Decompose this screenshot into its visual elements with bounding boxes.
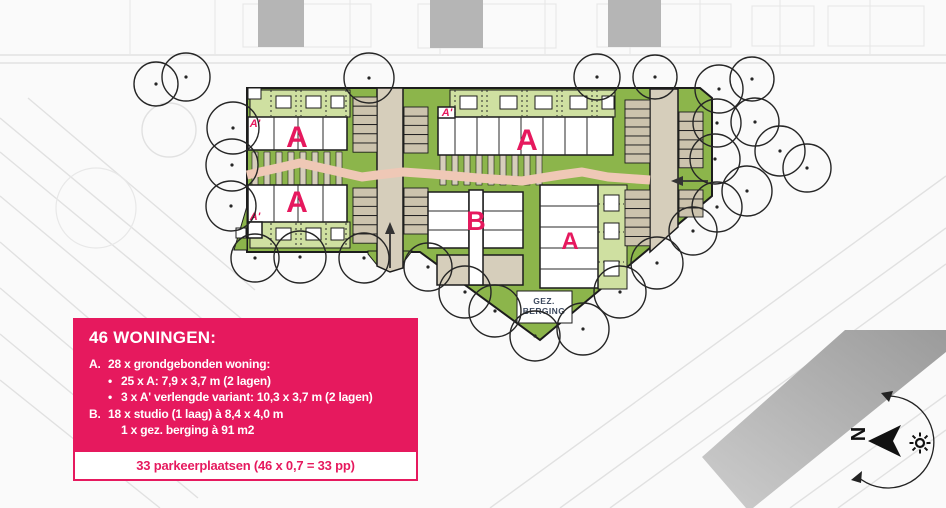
label-a2: A (286, 186, 308, 219)
tree-trunk-dot (533, 334, 536, 337)
tree-trunk-dot (298, 255, 301, 258)
north-arrow-icon (868, 425, 901, 457)
tree-trunk-dot (745, 189, 748, 192)
gez-berging: GEZ. BERGING (517, 291, 572, 323)
tree-trunk-dot (653, 75, 656, 78)
site-plan-page: GEZ. BERGING A A A A B A' A' A' N 46 WON… (0, 0, 946, 508)
parking-stall (625, 127, 650, 136)
tree-trunk-dot (230, 163, 233, 166)
garden-shed (604, 223, 619, 239)
gez-berging-label-1: GEZ. (533, 296, 554, 306)
garden-shed (460, 96, 477, 109)
sun-ray (925, 436, 928, 439)
tree-trunk-dot (154, 82, 157, 85)
parking-stall (353, 206, 377, 215)
tree-trunk-dot (367, 76, 370, 79)
existing-buildings (258, 0, 661, 48)
parking-stall (404, 225, 428, 234)
parking-stall (625, 109, 650, 118)
parking-stall (404, 107, 428, 116)
parking-stall (353, 97, 377, 106)
parking-stall (679, 190, 703, 199)
tree-trunk-dot (362, 256, 365, 259)
label-b: B (466, 206, 486, 236)
tree-trunk-dot (253, 256, 256, 259)
garden-shed (570, 96, 587, 109)
tree-trunk-dot (715, 121, 718, 124)
label-a3: A (516, 124, 538, 157)
parking-stall (353, 106, 377, 115)
legend-item-text: 28 x grondgebonden woning: (108, 356, 270, 373)
parking-stall (404, 125, 428, 134)
existing-building (258, 0, 304, 47)
legend-item: • 25 x A: 7,9 x 3,7 m (2 lagen) (108, 373, 406, 390)
legend-item-text: 1 x gez. berging à 91 m2 (121, 422, 254, 439)
tree-trunk-dot (595, 75, 598, 78)
garden-stripe (440, 155, 446, 185)
parking-stall (625, 145, 650, 154)
tree-trunk-dot (750, 77, 753, 80)
parking-stall (353, 125, 377, 134)
legend-item-prefix: B. (89, 406, 108, 423)
legend-title: 46 WONINGEN: (89, 328, 406, 348)
tree-trunk-dot (231, 126, 234, 129)
sun-ray (913, 448, 916, 451)
legend-box: 46 WONINGEN: A. 28 x grondgebonden wonin… (73, 318, 418, 450)
block-b-left (428, 192, 469, 248)
label-a1: A (286, 121, 308, 154)
parking-stall (404, 116, 428, 125)
legend-item-bullet: • (108, 373, 121, 390)
legend-item-bullet: • (108, 389, 121, 406)
sun-icon (916, 439, 924, 447)
parking-stall (625, 237, 650, 246)
garden-shed (604, 261, 619, 276)
tree-trunk-dot (717, 87, 720, 90)
garden-shed (248, 88, 261, 99)
garden-shed (535, 96, 552, 109)
parking-stall (404, 216, 428, 225)
parking-stall (404, 206, 428, 215)
tree-trunk-dot (715, 205, 718, 208)
legend-item-text: 25 x A: 7,9 x 3,7 m (2 lagen) (121, 373, 271, 390)
existing-building-diagonal (702, 330, 946, 508)
parking-stall (625, 118, 650, 127)
parking-stall (625, 209, 650, 218)
parking-stall (625, 190, 650, 199)
parking-stall (353, 134, 377, 143)
parking-stall (625, 136, 650, 145)
parking-stall (353, 197, 377, 206)
legend-item-prefix (108, 422, 121, 439)
legend-panel: 46 WONINGEN: A. 28 x grondgebonden wonin… (73, 318, 418, 481)
garden-shed (276, 96, 291, 108)
tree-trunk-dot (581, 327, 584, 330)
tree-trunk-dot (778, 149, 781, 152)
green-flank-road-left (368, 251, 377, 265)
garden-shed (331, 96, 344, 108)
parking-stall (404, 197, 428, 206)
parking-stall (625, 227, 650, 236)
legend-item-text: 3 x A' verlengde variant: 10,3 x 3,7 m (… (121, 389, 373, 406)
garden-shed (500, 96, 517, 109)
north-label: N (848, 427, 870, 441)
arc-arrowhead-bottom (851, 471, 862, 483)
parking-stall (353, 143, 377, 152)
legend-item: • 3 x A' verlengde variant: 10,3 x 3,7 m… (108, 389, 406, 406)
legend-item: A. 28 x grondgebonden woning: (89, 356, 406, 373)
sun-ray (913, 436, 916, 439)
label-a4: A (561, 228, 578, 255)
parking-stall (679, 140, 703, 149)
parking-stall (679, 121, 703, 130)
garden-shed (331, 228, 344, 240)
parking-stall (625, 199, 650, 208)
parking-stall (404, 144, 428, 153)
parking-stall (353, 216, 377, 225)
tree-trunk-dot (184, 75, 187, 78)
a-prime-extension (248, 222, 262, 238)
tree-trunk-dot (753, 120, 756, 123)
parking-stall (679, 112, 703, 121)
parking-stall (625, 218, 650, 227)
sun-rays (910, 433, 931, 454)
legend-item-prefix: A. (89, 356, 108, 373)
tree-trunk-dot (618, 290, 621, 293)
garden-shed (604, 195, 619, 211)
parking-stall (404, 135, 428, 144)
tree-trunk-dot (691, 229, 694, 232)
legend-item-text: 18 x studio (1 laag) à 8,4 x 4,0 m (108, 406, 283, 423)
legend-item: B. 18 x studio (1 laag) à 8,4 x 4,0 m (89, 406, 406, 423)
block-b-right (483, 192, 523, 248)
tree-trunk-dot (426, 265, 429, 268)
tree-trunk-dot (493, 309, 496, 312)
existing-building (608, 0, 661, 47)
tree-trunk-dot (229, 204, 232, 207)
parking-stall (353, 115, 377, 124)
tree-trunk-dot (463, 290, 466, 293)
parking-stall (625, 154, 650, 163)
parking-stall (625, 100, 650, 109)
legend-item: 1 x gez. berging à 91 m2 (108, 422, 406, 439)
legend-footer: 33 parkeerplaatsen (46 x 0,7 = 33 pp) (73, 450, 418, 481)
east-road (650, 89, 678, 252)
tree-trunk-dot (655, 261, 658, 264)
existing-building (430, 0, 483, 48)
sun-ray (925, 448, 928, 451)
label-a-prime-3: A' (441, 107, 453, 119)
tree-trunk-dot (805, 166, 808, 169)
parking-stall (404, 188, 428, 197)
tree-trunk-dot (713, 157, 716, 160)
garden-shed (306, 96, 321, 108)
parking-stall (353, 188, 377, 197)
